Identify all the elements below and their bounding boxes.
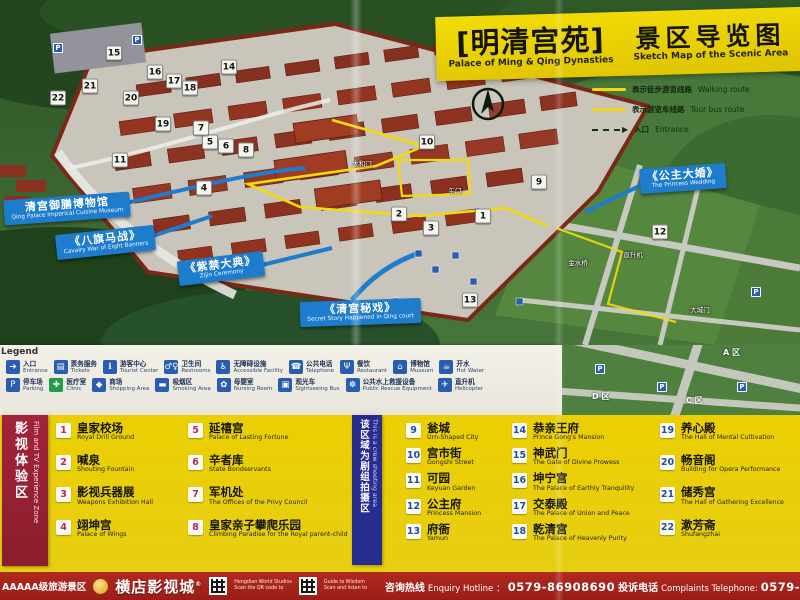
legend-item-label: 游客中心Tourist Center [120,360,158,375]
callout-secret-story: 《清宫秘戏》 Secret Story Happened in Qing cou… [300,298,421,327]
walking-route-swatch [592,88,626,91]
sightseeing-bus-icon: ▣ [278,378,292,392]
poi-item-15: 15神武门The Gate of Divine Prowess [512,447,658,467]
poi-item-17: 17交泰殿The Palace of Union and Peace [512,498,658,518]
legend-item-label: 卫生间Restrooms [181,360,210,375]
poi-label: 辛者库State Bondservants [209,454,271,474]
poi-number-badge: 21 [660,487,675,502]
zone-label: D 区 [592,391,609,402]
legend-item: ♂♀卫生间Restrooms [164,360,210,375]
complaints-zh: 投诉电话 [618,579,658,594]
map-marker-19: 19 [155,117,171,132]
poi-item-13: 13府衙Yamun [406,523,508,543]
bus-route-swatch [592,108,626,111]
map-marker-20: 20 [123,91,139,106]
title-group-sub: 景区导览图 Sketch Map of the Scenic Area [633,21,789,63]
poi-item-19: 19养心殿The Hall of Mental Cultivation [660,422,798,442]
map-marker-6: 6 [218,139,234,154]
entrance-dash-swatch [592,129,620,131]
legend-item: ♿无障碍设施Accessible Facility [216,360,283,375]
legend-item-label: 母婴室Nursing Room [234,378,273,393]
legend-item: ⌂博物馆Museum [393,360,433,375]
poi-number-badge: 2 [56,455,71,470]
footer-strip: AAAAA级旅游景区 横店影视城® Hengdian World Studios… [0,572,800,600]
legend-item: ◆商场Shopping Area [92,378,149,393]
map-marker-15: 15 [106,46,122,61]
legend-item-label: 停车场Parking [23,378,43,393]
poi-item-22: 22漱芳斋Shufangzhai [660,519,798,539]
poi-label: 畅音阁Building for Opera Performance [681,454,780,474]
poi-number-badge: 18 [512,524,527,539]
legend-item: Ψ餐饮Restaurant [340,360,387,375]
registered-mark: ® [195,581,202,588]
hotline-en: Enquiry Hotline [428,584,493,594]
legend-item-label: 票务服务Tickets [71,360,97,375]
legend-item-label: 无障碍设施Accessible Facility [233,360,283,375]
poi-label: 府衙Yamun [427,523,450,543]
poi-item-4: 4翊坤宫Palace of Wings [56,519,184,539]
hotline-zh: 咨询热线 [385,579,425,594]
clinic-icon: ✚ [49,378,63,392]
parking-icon: P [132,35,142,45]
crew-area-en: This is a crew shooting area [371,419,378,565]
tickets-icon: ▤ [54,360,68,374]
compass-icon [473,89,503,119]
hot-water-icon: ☕ [439,360,453,374]
poi-number-badge: 6 [188,455,203,470]
legend-item-label: 入口Entrance [23,360,48,375]
legend-item-label: 观光车Sightseeing Bus [295,378,339,393]
legend-item-label: 博物馆Museum [410,360,433,375]
legend-item: ✈直升机Helicopter [438,378,483,393]
map-marker-22: 22 [50,91,66,106]
legend-item: ▬吸烟区Smoking Area [155,378,210,393]
walking-route-legend: 表示徒步游览线路 Walking route [592,84,750,95]
entrance-icon: ➔ [6,360,20,374]
map-marker-5: 5 [202,135,218,150]
poi-number-badge: 20 [660,455,675,470]
legend-band: Legend ➔入口Entrance▤票务服务Ticketsℹ游客中心Touri… [0,345,800,415]
museum-icon: ⌂ [393,360,407,374]
poi-label: 皇家校场Royal Drill Ground [77,422,134,442]
poi-item-21: 21储秀宫The Hall of Gathering Excellence [660,486,798,506]
map-area: [明清宫苑] Palace of Ming & Qing Dynasties 景… [0,0,800,345]
entrance-en: Entrance [655,125,689,134]
map-marker-12: 12 [652,225,668,240]
parking-icon: P [595,364,605,374]
restaurant-icon: Ψ [340,360,354,374]
qr-code-icon [299,577,317,595]
legend-strip: Legend ➔入口Entrance▤票务服务Ticketsℹ游客中心Touri… [0,345,562,415]
poi-number-badge: 11 [406,473,421,488]
qr-note-2: Guide to Wisdom Scan and listen to [324,580,367,593]
poi-item-8: 8皇家亲子攀爬乐园Climbing Paradise for the Royal… [188,519,350,539]
poi-column-2: 5延禧宫Palace of Lasting Fortune6辛者库State B… [188,422,350,551]
route-legend: 表示徒步游览线路 Walking route 表示游览车线路 Tour bus … [592,84,750,135]
parking-icon: P [53,43,63,53]
poi-label: 喊泉Shouting Fountain [77,454,134,474]
poi-item-16: 16坤宁宫The Palace of Earthly Tranquility [512,472,658,492]
poi-item-5: 5延禧宫Palace of Lasting Fortune [188,422,350,442]
map-marker-7: 7 [193,121,209,136]
poi-label: 乾清宫The Palace of Heavenly Purity [533,523,627,543]
poi-item-18: 18乾清宫The Palace of Heavenly Purity [512,523,658,543]
tourist-center-icon: ℹ [103,360,117,374]
brand-zh: 横店影视城 [115,578,195,596]
walking-route-en: Walking route [698,85,750,94]
legend-item: ✚医疗室Clinic [49,378,86,393]
poi-number-badge: 9 [406,423,421,438]
film-zone-banner: 影视体验区 Film and TV Experience Zone [2,415,48,566]
walking-route-zh: 表示徒步游览线路 [632,84,692,95]
poi-label: 恭亲王府Prince Gong's Mansion [533,422,604,442]
poi-item-2: 2喊泉Shouting Fountain [56,454,184,474]
entrance-zh: 入口 [634,124,649,135]
map-marker-8: 8 [238,143,254,158]
poi-number-badge: 3 [56,487,71,502]
poi-label: 延禧宫Palace of Lasting Fortune [209,422,288,442]
telephone-icon: ☎ [289,360,303,374]
legend-item: ☸公共水上救援设备Public Rescue Equipment [346,378,432,393]
poi-item-20: 20畅音阁Building for Opera Performance [660,454,798,474]
poi-label: 神武门The Gate of Divine Prowess [533,447,619,467]
hotline-info: 咨询热线 Enquiry Hotline ： 0579-86908690 投诉电… [385,579,800,594]
crew-area-zh: 该区域为剧组拍摄区 [356,419,370,565]
subtitle-zh: 景区导览图 [635,21,786,53]
map-marker-16: 16 [147,65,163,80]
poi-item-6: 6辛者库State Bondservants [188,454,350,474]
legend-item-label: 直升机Helicopter [455,378,483,393]
map-marker-9: 9 [531,175,547,190]
poi-item-10: 10宫市街Gongshi Street [406,447,508,467]
map-marker-17: 17 [166,74,182,89]
poi-column-3: 9瓮城Urn-Shaped City10宫市街Gongshi Street11可… [406,422,508,548]
map-marker-21: 21 [82,79,98,94]
cigarette-icon: ▬ [155,378,169,392]
poi-item-1: 1皇家校场Royal Drill Ground [56,422,184,442]
map-marker-2: 2 [391,207,407,222]
poi-column-1: 1皇家校场Royal Drill Ground2喊泉Shouting Fount… [56,422,184,551]
poi-label: 坤宁宫The Palace of Earthly Tranquility [533,472,634,492]
legend-row-2: P停车场Parking✚医疗室Clinic◆商场Shopping Area▬吸烟… [6,378,562,393]
title-zh: [明清宫苑] [456,25,605,60]
map-marker-13: 13 [462,293,478,308]
poi-item-14: 14恭亲王府Prince Gong's Mansion [512,422,658,442]
complaints-number: 0579- [761,580,800,594]
map-label: 大城门 [690,304,710,314]
film-zone-zh: 影视体验区 [10,421,29,566]
legend-item: ➔入口Entrance [6,360,48,375]
map-label: 午门 [449,185,462,195]
entrance-arrow-icon: ▶ [622,125,628,134]
poi-label: 储秀宫The Hall of Gathering Excellence [681,486,784,506]
entrance-legend: ▶ 入口 Entrance [592,124,750,135]
legend-title: Legend [1,347,562,357]
map-marker-4: 4 [196,181,212,196]
legend-item-label: 医疗室Clinic [66,378,86,393]
map-marker-1: 1 [475,209,491,224]
map-marker-11: 11 [112,153,128,168]
hotline-number: 0579-86908690 [508,580,615,594]
title-banner: [明清宫苑] Palace of Ming & Qing Dynasties 景… [435,7,800,81]
poi-item-11: 11可园Keyuan Garden [406,472,508,492]
brand-name: 横店影视城® [115,576,202,597]
map-marker-14: 14 [221,60,237,75]
helicopter-icon: ✈ [438,378,452,392]
legend-item-label: 开水Hot Water [456,360,484,375]
poi-number-badge: 17 [512,499,527,514]
poi-number-badge: 5 [188,423,203,438]
poi-label: 漱芳斋Shufangzhai [681,519,720,539]
poi-number-badge: 7 [188,487,203,502]
poi-label: 养心殿The Hall of Mental Cultivation [681,422,774,442]
poi-column-4: 14恭亲王府Prince Gong's Mansion15神武门The Gate… [512,422,658,548]
poi-number-badge: 4 [56,520,71,535]
parking-icon: P [657,382,667,392]
map-marker-3: 3 [423,221,439,236]
nursing-icon: ✿ [217,378,231,392]
brand-logo-icon [93,579,108,594]
poi-label: 军机处The Offices of the Privy Council [209,486,307,506]
complaints-en: Complaints Telephone: [661,584,758,594]
rating-label: AAAAA级旅游景区 [2,579,86,593]
shopping-bag-icon: ◆ [92,378,106,392]
legend-item: ▤票务服务Tickets [54,360,97,375]
scenic-map-photo: [明清宫苑] Palace of Ming & Qing Dynasties 景… [0,0,800,600]
poi-label: 可园Keyuan Garden [427,472,475,492]
legend-item-label: 公共水上救援设备Public Rescue Equipment [363,378,432,393]
map-marker-18: 18 [182,81,198,96]
zone-label: A 区 [723,347,740,358]
poi-label: 皇家亲子攀爬乐园Climbing Paradise for the Royal … [209,519,348,539]
bus-route-en: Tour bus route [691,105,745,114]
legend-item: ☎公共电话Telephone [289,360,334,375]
legend-item: ☕开水Hot Water [439,360,484,375]
legend-item-label: 餐饮Restaurant [357,360,387,375]
legend-item-label: 公共电话Telephone [306,360,334,375]
poi-label: 交泰殿The Palace of Union and Peace [533,498,630,518]
map-label: 金水桥 [568,257,588,267]
map-label: 太和门 [352,158,372,168]
legend-item: ▣观光车Sightseeing Bus [278,378,339,393]
poi-item-3: 3影视兵器展Weapons Exhibition Hall [56,486,184,506]
legend-item: P停车场Parking [6,378,43,393]
parking-icon: P [751,287,761,297]
parking-icon: P [737,382,747,392]
wheelchair-icon: ♿ [216,360,230,374]
poi-number-badge: 12 [406,499,421,514]
legend-item: ✿母婴室Nursing Room [217,378,273,393]
bus-route-legend: 表示游览车线路 Tour bus route [592,104,750,115]
map-marker-10: 10 [419,135,435,150]
zone-label: C 区 [686,395,703,406]
poi-item-9: 9瓮城Urn-Shaped City [406,422,508,442]
poi-label: 影视兵器展Weapons Exhibition Hall [77,486,153,506]
parking-icon: P [6,378,20,392]
poi-label: 宫市街Gongshi Street [427,447,474,467]
poi-item-12: 12公主府Princess Mansion [406,498,508,518]
map-label: 直升机 [623,249,643,259]
poi-number-badge: 16 [512,473,527,488]
poi-number-badge: 1 [56,423,71,438]
poi-number-badge: 15 [512,448,527,463]
film-zone-en: Film and TV Experience Zone [32,421,40,566]
legend-row-1: ➔入口Entrance▤票务服务Ticketsℹ游客中心Tourist Cent… [6,360,562,375]
legend-item: ℹ游客中心Tourist Center [103,360,158,375]
legend-item-label: 吸烟区Smoking Area [172,378,210,393]
poi-column-5: 19养心殿The Hall of Mental Cultivation20畅音阁… [660,422,798,551]
restrooms-icon: ♂♀ [164,360,178,374]
qr-code-icon [209,577,227,595]
poi-number-badge: 10 [406,448,421,463]
poi-item-7: 7军机处The Offices of the Privy Council [188,486,350,506]
poi-number-badge: 19 [660,423,675,438]
poi-label: 瓮城Urn-Shaped City [427,422,478,442]
poi-label: 翊坤宫Palace of Wings [77,519,127,539]
crew-area-banner: 该区域为剧组拍摄区 This is a crew shooting area [352,415,382,565]
poi-index: 影视体验区 Film and TV Experience Zone 1皇家校场R… [0,415,800,572]
poi-label: 公主府Princess Mansion [427,498,481,518]
legend-item-label: 商场Shopping Area [109,378,149,393]
poi-number-badge: 22 [660,520,675,535]
poi-number-badge: 14 [512,423,527,438]
qr-note-1: Hengdian World Studios Scan the QR code … [234,580,292,593]
lifebuoy-icon: ☸ [346,378,360,392]
title-group-name: [明清宫苑] Palace of Ming & Qing Dynasties [448,24,614,69]
poi-number-badge: 13 [406,524,421,539]
bus-route-zh: 表示游览车线路 [632,104,685,115]
poi-number-badge: 8 [188,520,203,535]
map-extension: A 区D 区C 区 PPP [562,345,800,415]
